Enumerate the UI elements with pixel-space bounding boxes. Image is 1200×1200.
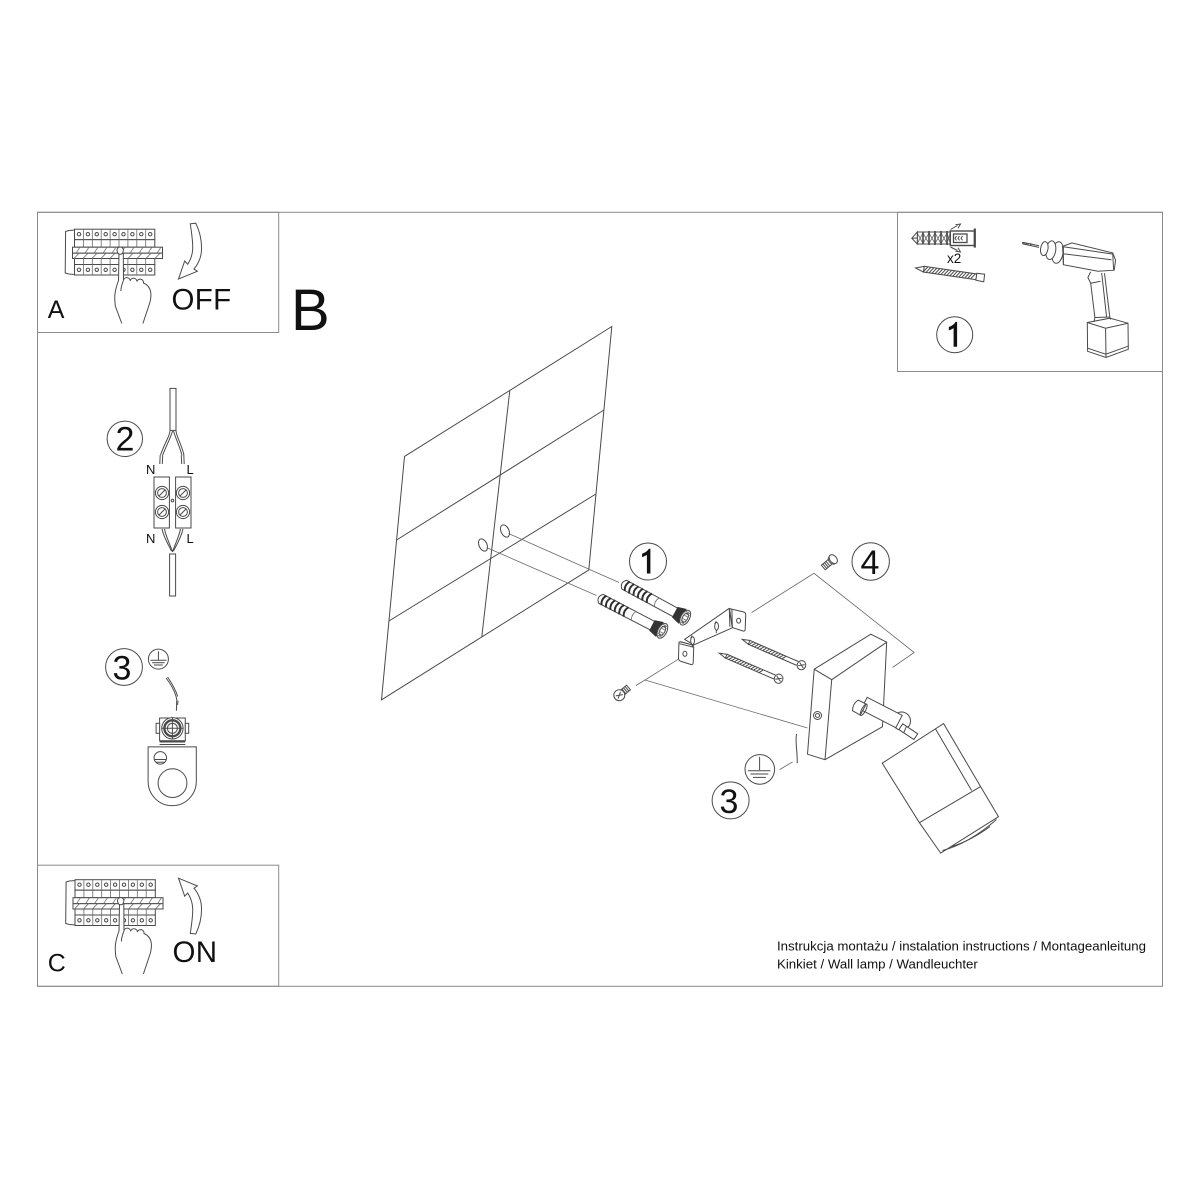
svg-text:Instrukcja montażu / instalati: Instrukcja montażu / instalation instruc… xyxy=(777,938,1146,953)
svg-text:A: A xyxy=(48,296,65,324)
svg-text:Kinkiet / Wall lamp / Wandleuc: Kinkiet / Wall lamp / Wandleuchter xyxy=(777,957,978,972)
svg-text:3: 3 xyxy=(113,649,132,687)
svg-text:ON: ON xyxy=(173,936,218,969)
svg-text:L: L xyxy=(187,462,194,477)
svg-text:L: L xyxy=(187,531,194,546)
svg-text:OFF: OFF xyxy=(172,284,232,317)
svg-text:2: 2 xyxy=(116,421,135,459)
svg-text:4: 4 xyxy=(861,544,880,582)
svg-text:B: B xyxy=(291,278,330,343)
svg-text:C: C xyxy=(48,950,66,978)
svg-text:3: 3 xyxy=(720,783,739,821)
svg-text:N: N xyxy=(146,462,155,477)
svg-text:x2: x2 xyxy=(947,251,961,266)
svg-text:N: N xyxy=(146,531,155,546)
